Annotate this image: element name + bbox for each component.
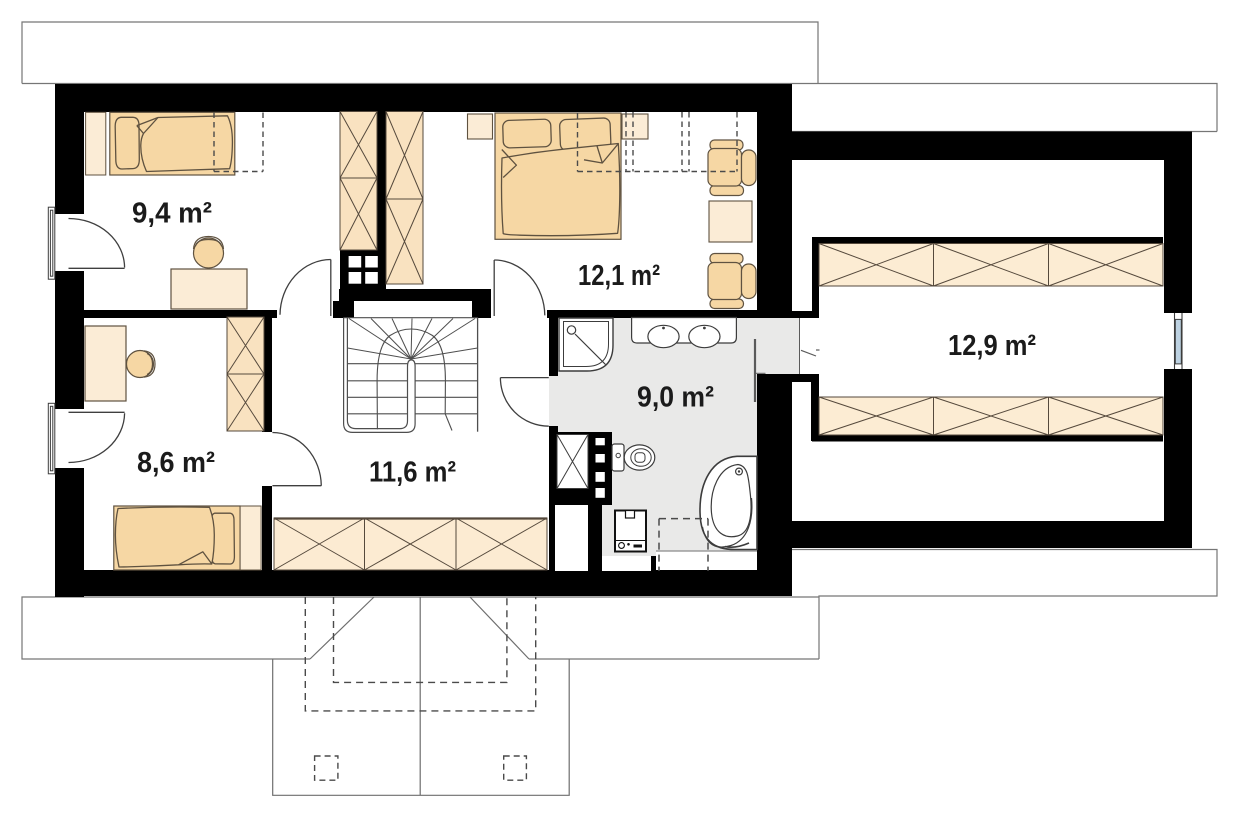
svg-text:12,9 m²: 12,9 m² <box>948 330 1036 362</box>
svg-text:9,4 m²: 9,4 m² <box>132 198 212 230</box>
svg-text:12,1 m²: 12,1 m² <box>578 260 660 292</box>
svg-text:11,6 m²: 11,6 m² <box>369 457 456 489</box>
svg-text:8,6 m²: 8,6 m² <box>137 447 215 479</box>
svg-text:9,0 m²: 9,0 m² <box>637 382 714 414</box>
